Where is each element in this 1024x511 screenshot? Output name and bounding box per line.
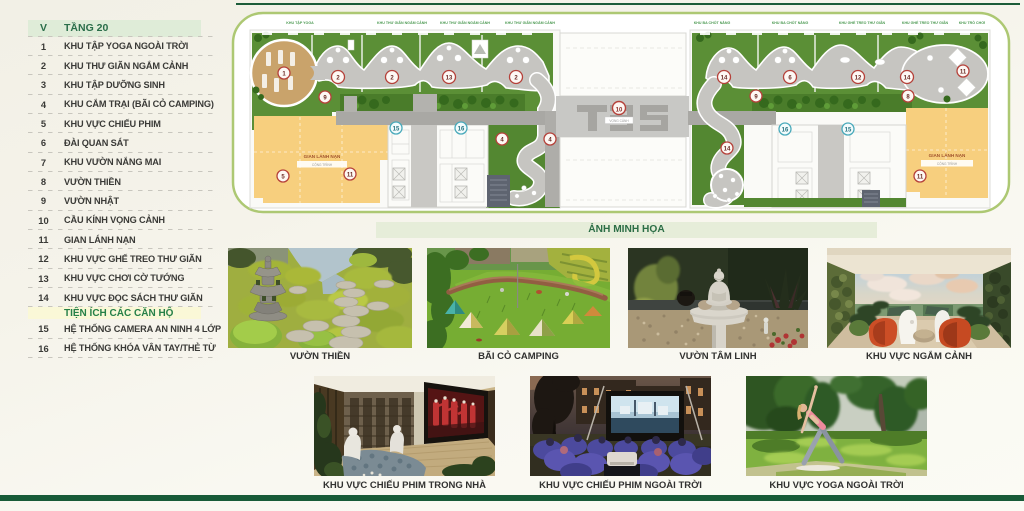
svg-text:15: 15: [393, 127, 400, 133]
svg-text:11: 11: [347, 173, 354, 179]
svg-text:13: 13: [446, 76, 453, 82]
svg-text:16: 16: [782, 128, 789, 134]
svg-text:KHU THƯ GIÃN NGẮM CẢNH: KHU THƯ GIÃN NGẮM CẢNH: [505, 20, 555, 25]
svg-text:14: 14: [721, 76, 728, 82]
svg-text:15: 15: [845, 128, 852, 134]
svg-text:12: 12: [855, 76, 862, 82]
svg-text:KHU GHẾ TREO THƯ GIÃN: KHU GHẾ TREO THƯ GIÃN: [839, 20, 886, 25]
svg-text:KHU THƯ GIÃN NGẮM CẢNH: KHU THƯ GIÃN NGẮM CẢNH: [440, 20, 490, 25]
svg-text:11: 11: [917, 175, 924, 181]
svg-text:KHU BA CHỐT NẮNG: KHU BA CHỐT NẮNG: [694, 20, 731, 25]
svg-text:KHU TRÒ CHƠI: KHU TRÒ CHƠI: [959, 20, 986, 25]
svg-text:14: 14: [904, 76, 911, 82]
svg-text:VỌNG CẢNH: VỌNG CẢNH: [609, 118, 629, 123]
svg-text:11: 11: [960, 70, 967, 76]
svg-text:GIAN LÁNH NẠN: GIAN LÁNH NẠN: [304, 153, 341, 159]
svg-text:CỘNG TRÌNH: CỘNG TRÌNH: [312, 162, 333, 167]
svg-text:CỘNG TRÌNH: CỘNG TRÌNH: [937, 161, 958, 166]
svg-text:GIAN LÁNH NẠN: GIAN LÁNH NẠN: [929, 152, 966, 158]
svg-text:KHU THƯ GIÃN NGẮM CẢNH: KHU THƯ GIÃN NGẮM CẢNH: [377, 20, 427, 25]
svg-text:14: 14: [724, 147, 731, 153]
svg-text:KHU BA CHỐT NẮNG: KHU BA CHỐT NẮNG: [772, 20, 809, 25]
svg-text:KHU TẬP YOGA: KHU TẬP YOGA: [286, 20, 314, 25]
svg-text:KHU GHẾ TREO THƯ GIÃN: KHU GHẾ TREO THƯ GIÃN: [902, 20, 949, 25]
svg-text:10: 10: [616, 108, 623, 114]
svg-text:16: 16: [458, 127, 465, 133]
